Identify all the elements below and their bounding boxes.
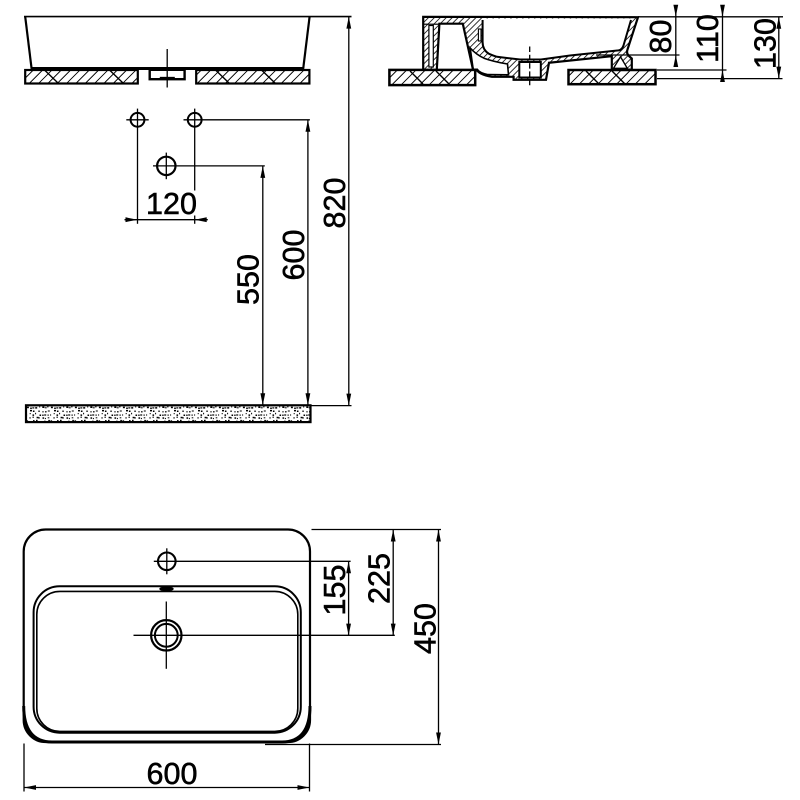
svg-text:550: 550 [232, 254, 266, 305]
svg-text:130: 130 [748, 18, 782, 69]
svg-text:600: 600 [147, 757, 198, 791]
svg-text:155: 155 [318, 565, 352, 616]
svg-text:120: 120 [146, 187, 197, 221]
svg-text:820: 820 [318, 178, 352, 229]
svg-text:450: 450 [408, 603, 442, 654]
svg-text:80: 80 [644, 20, 678, 54]
svg-text:225: 225 [362, 553, 396, 604]
svg-text:600: 600 [277, 230, 311, 281]
svg-text:110: 110 [691, 14, 725, 63]
